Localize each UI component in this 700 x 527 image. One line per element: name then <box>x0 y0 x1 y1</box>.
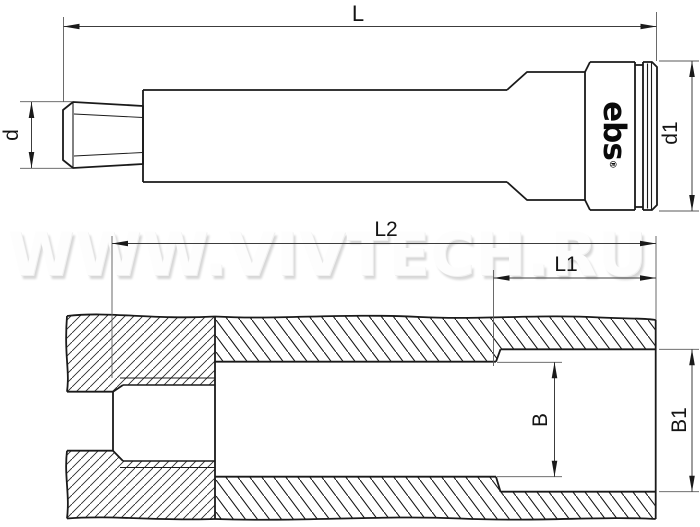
dim-label-L1: L1 <box>546 254 586 276</box>
extension-lines <box>20 12 699 492</box>
thread-tip-outline <box>63 102 143 168</box>
thread-bore-crest-lines <box>120 378 215 468</box>
registered-trademark-icon: ® <box>607 160 617 169</box>
groove-ring-outline <box>635 62 643 210</box>
ebs-brand-logo: ebs® <box>595 96 631 174</box>
dim-label-L: L <box>338 3 378 25</box>
top-view-outline <box>63 62 657 210</box>
thread-bore-chamfers <box>113 385 123 461</box>
dim-label-B1: B1 <box>669 398 691 442</box>
drawing-linework <box>0 0 700 527</box>
dimension-arrowheads <box>29 24 695 492</box>
dim-label-d1: d1 <box>660 111 682 155</box>
pilot-bore <box>67 392 113 451</box>
dimension-lines <box>32 27 693 492</box>
taper-outline <box>507 72 585 200</box>
dim-label-d: d <box>1 113 23 157</box>
bore-B1-edges <box>501 349 656 491</box>
section-hatch-right-part <box>215 316 656 520</box>
ebs-logo-text: ebs <box>596 101 632 160</box>
dim-label-B: B <box>530 398 552 442</box>
bore-B-edges <box>215 362 496 477</box>
end-disc-outline <box>643 62 657 210</box>
shank-outline <box>143 90 507 182</box>
dim-label-L2: L2 <box>366 219 406 241</box>
technical-drawing-canvas: WWW.VIVTECH.RU <box>0 0 700 527</box>
section-hatch-left-part <box>66 314 215 519</box>
thread-bore-root-lines <box>123 385 215 461</box>
